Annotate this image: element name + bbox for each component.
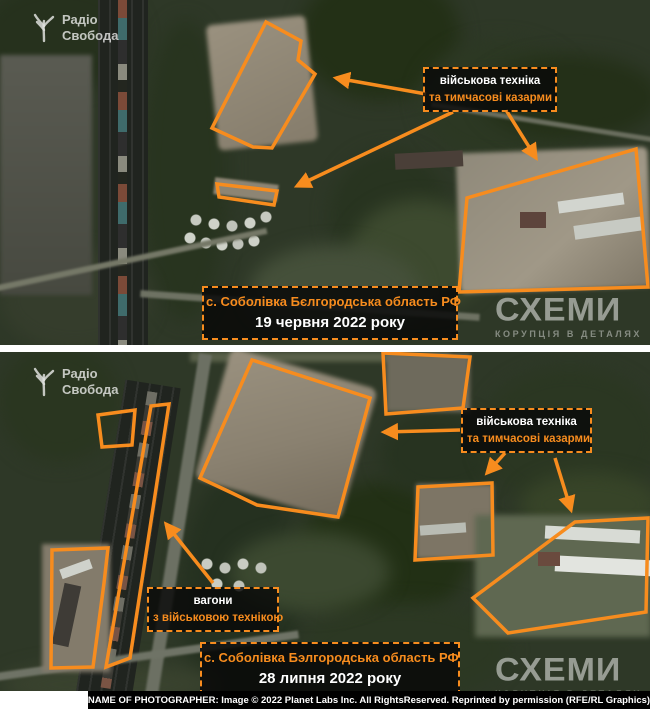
caption-date: 19 червня 2022 року <box>206 312 454 335</box>
logo-line1: Радіо <box>62 366 118 382</box>
credit-text: NAME OF PHOTOGRAPHER: Image © 2022 Plane… <box>88 691 650 709</box>
watermark-brand: СХЕМИ <box>495 294 642 326</box>
caption-location-date: с. Соболівка Бєлгородська область РФ 19 … <box>202 286 458 340</box>
label-military-equipment: військова техніка та тимчасові казарми <box>423 67 557 112</box>
logo-line2: Свобода <box>62 382 118 398</box>
industrial-yard <box>0 55 92 295</box>
label-military-equipment: військова техніка та тимчасові казарми <box>461 408 592 453</box>
satellite-image-july <box>0 352 650 691</box>
watermark-brand: СХЕМИ <box>495 654 642 686</box>
watermark-tagline: КОРУПЦІЯ В ДЕТАЛЯХ <box>495 329 642 339</box>
label-line-orange: та тимчасові казарми <box>429 90 551 107</box>
building-red-roof <box>538 552 560 566</box>
label-line-white: вагони <box>153 593 273 610</box>
radio-svoboda-logo-icon <box>32 13 56 43</box>
schemes-watermark: СХЕМИ КОРУПЦІЯ В ДЕТАЛЯХ <box>495 293 642 339</box>
label-wagons: вагони з військовою технікою <box>147 587 279 632</box>
caption-location: с. Соболівка Бэлгородська область РФ <box>204 648 456 668</box>
annotated-satellite-graphic: Радіо Свобода військова техніка та тимча… <box>0 0 650 709</box>
label-line-orange: з військовою технікою <box>153 610 273 627</box>
building <box>395 150 464 170</box>
caption-location: с. Соболівка Бєлгородська область РФ <box>206 292 454 312</box>
label-line-white: військова техніка <box>429 73 551 90</box>
caption-location-date: с. Соболівка Бэлгородська область РФ 28 … <box>200 642 460 691</box>
radio-svoboda-logo: Радіо Свобода <box>32 366 118 397</box>
label-line-orange: та тимчасові казарми <box>467 431 586 448</box>
schemes-watermark: СХЕМИ КОРУПЦІЯ В ДЕТАЛЯХ <box>495 653 642 691</box>
clearing-vehicle-park <box>206 15 319 151</box>
train-cars <box>118 0 127 345</box>
clearing-north <box>386 354 470 412</box>
radio-svoboda-logo-icon <box>32 367 56 397</box>
credit-bar: NAME OF PHOTOGRAPHER: Image © 2022 Plane… <box>0 691 650 709</box>
building-red-roof <box>520 212 546 228</box>
label-line-white: військова техніка <box>467 414 586 431</box>
logo-line2: Свобода <box>62 28 118 44</box>
logo-line1: Радіо <box>62 12 118 28</box>
radio-svoboda-logo: Радіо Свобода <box>32 12 118 43</box>
caption-date: 28 липня 2022 року <box>204 668 456 691</box>
satellite-panel-july: Радіо Свобода військова техніка та тимча… <box>0 352 650 691</box>
satellite-panel-june: Радіо Свобода військова техніка та тимча… <box>0 0 650 345</box>
